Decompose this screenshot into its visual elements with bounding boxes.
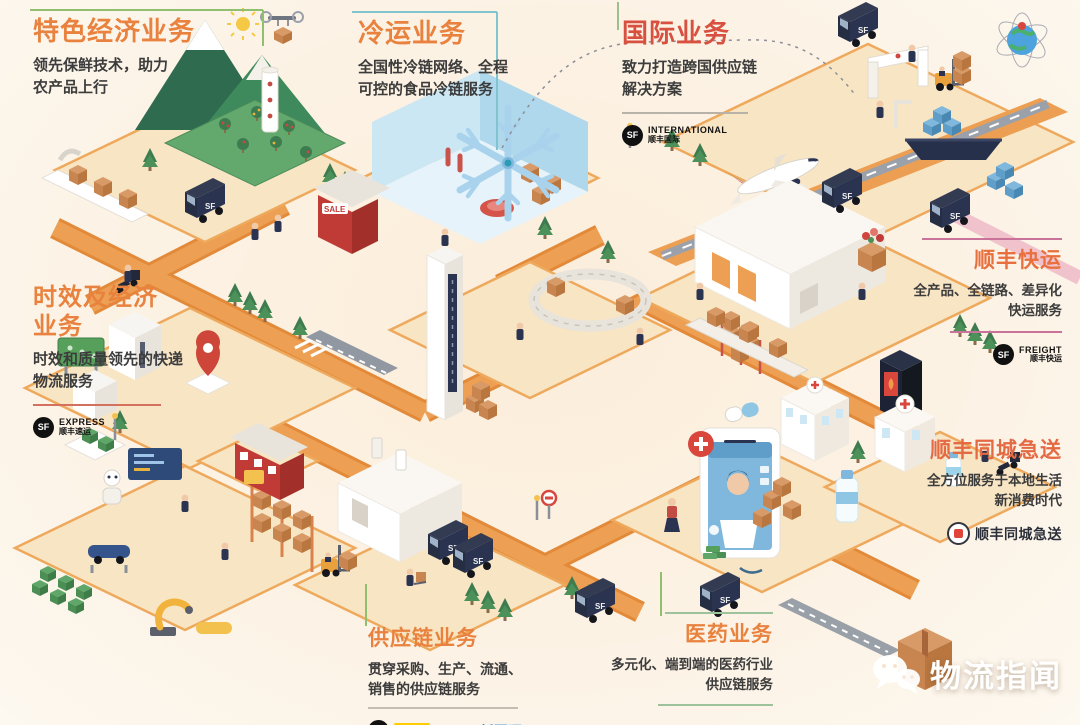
section-desc: 多元化、端到端的医药行业 供应链服务 (573, 655, 773, 696)
section-intracity: 顺丰同城急送 全方位服务于本地生活 新消费时代 顺丰同城急送 (872, 438, 1062, 545)
divider (950, 331, 1062, 333)
watermark: 物流指闻 (870, 651, 1062, 696)
divider (665, 612, 773, 614)
section-title: 顺丰同城急送 (872, 438, 1062, 464)
drone-icon (261, 12, 303, 44)
divider (33, 404, 161, 406)
sf-logo-icon: SF (368, 720, 389, 725)
section-desc: 全产品、全链路、差异化 快运服务 (882, 281, 1062, 322)
sf-freight-logo: SF FREIGHT 顺丰快运 (882, 344, 1062, 365)
section-cold-chain: 冷运业务 全国性冷链网络、全程 可控的食品冷链服务 (358, 18, 508, 102)
section-title: 顺丰快运 (882, 248, 1062, 274)
section-title: 国际业务 (622, 18, 772, 50)
sf-express-logo: SF EXPRESS 顺丰速运 (33, 417, 213, 438)
section-title: 特色经济业务 (33, 16, 195, 48)
red-cross-badge (688, 431, 714, 457)
svg-text:SALE: SALE (324, 205, 346, 214)
customs-truck (838, 2, 878, 47)
section-supply-chain: 供应链业务 贯穿采购、生产、流通、 销售的供应链服务 SF -DHL- 新夏晖 (368, 626, 578, 725)
divider (658, 704, 773, 706)
section-special-economy: 特色经济业务 领先保鲜技术，助力 农产品上行 (33, 16, 195, 100)
section-pharma: 医药业务 多元化、端到端的医药行业 供应链服务 (573, 612, 773, 706)
sf-logo-icon: SF (993, 344, 1014, 365)
section-express-economy: 时效及经济 业务 时效和质量领先的快递 物流服务 SF EXPRESS 顺丰速运 (33, 283, 213, 438)
forklift-loading (935, 51, 971, 91)
medical-van (700, 572, 740, 617)
section-desc: 贯穿采购、生产、流通、 销售的供应链服务 (368, 659, 578, 700)
section-desc: 全方位服务于本地生活 新消费时代 (872, 471, 1062, 512)
section-title: 时效及经济 业务 (33, 283, 213, 342)
divider (622, 112, 748, 114)
section-title: 医药业务 (573, 622, 773, 648)
sf-logo-icon: SF (33, 417, 54, 438)
section-desc: 领先保鲜技术，助力 农产品上行 (33, 55, 195, 100)
capsule-pill-icon (724, 401, 760, 423)
spiral-tower (262, 67, 278, 132)
sale-storefront: SALE (314, 170, 390, 254)
wechat-icon (870, 653, 922, 695)
divider (368, 707, 518, 709)
sf-logo-icon: SF (622, 125, 643, 146)
globe-icon (993, 13, 1051, 67)
section-desc: 全国性冷链网络、全程 可控的食品冷链服务 (358, 57, 508, 102)
intracity-logo: 顺丰同城急送 (872, 522, 1062, 545)
section-international: 国际业务 致力打造跨国供应链 解决方案 SF INTERNATIONAL 顺丰国… (622, 18, 772, 146)
section-title: 供应链业务 (368, 626, 578, 652)
sun-icon (236, 17, 250, 31)
sf-international-logo: SF INTERNATIONAL 顺丰国际 (622, 125, 772, 146)
section-freight: 顺丰快运 全产品、全链路、差异化 快运服务 SF FREIGHT 顺丰快运 (882, 238, 1062, 365)
xinxiahui-logo: 新夏晖 (477, 721, 519, 725)
intracity-logo-icon (947, 522, 970, 545)
watermark-text: 物流指闻 (930, 651, 1062, 696)
section-title: 冷运业务 (358, 18, 508, 50)
road-sign (542, 491, 556, 519)
section-desc: 致力打造跨国供应链 解决方案 (622, 57, 772, 102)
divider (922, 238, 1062, 240)
infographic-poster: SF (0, 0, 1080, 725)
section-desc: 时效和质量领先的快递 物流服务 (33, 349, 213, 394)
supply-chain-logos: SF -DHL- 新夏晖 (368, 720, 578, 725)
